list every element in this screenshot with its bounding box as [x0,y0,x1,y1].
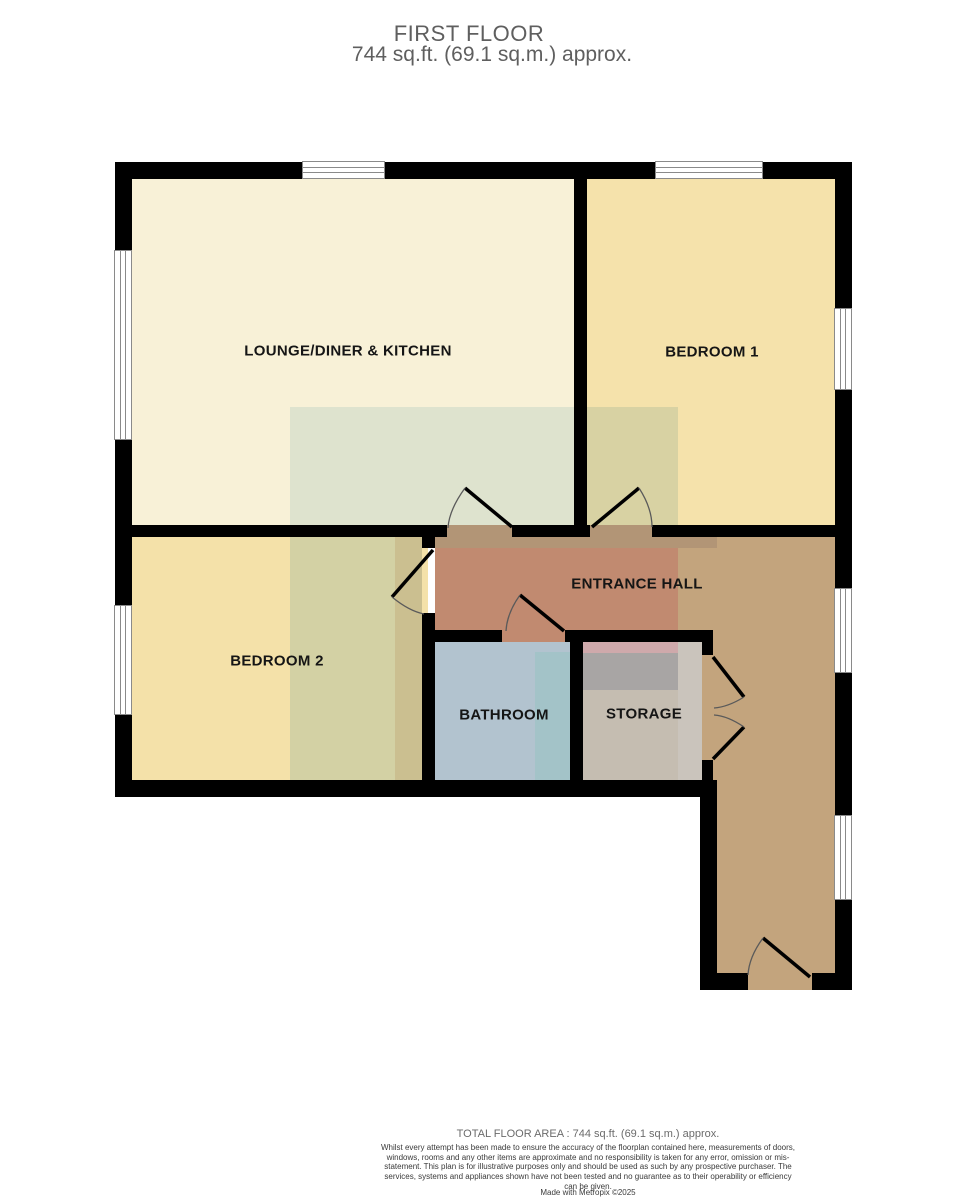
door-graphics [0,0,968,1200]
door-leaf-storage-top [713,657,744,697]
door-leaf-bathroom [520,595,564,631]
door-leaf-lounge [465,488,512,527]
door-swing-arc-front-entrance [748,938,763,975]
door-swing-arc-lounge [448,488,465,528]
door-swing-arc-bedroom2 [392,597,424,614]
door-swing-arc-bedroom1 [639,488,652,527]
room-label-storage: STORAGE [606,706,682,723]
room-label-bedroom2: BEDROOM 2 [230,653,324,670]
room-label-bathroom: BATHROOM [459,707,549,724]
floorplan: LOUNGE/DINER & KITCHEN BEDROOM 1 BEDROOM… [0,0,968,1200]
credit-text: Made with Metropix ©2025 [378,1188,798,1198]
room-label-hall: ENTRANCE HALL [571,576,702,593]
disclaimer-text: Whilst every attempt has been made to en… [378,1143,798,1192]
door-leaf-bedroom1 [592,488,639,527]
door-swing-arc-storage-bottom [714,715,744,727]
room-label-lounge: LOUNGE/DINER & KITCHEN [244,343,451,360]
door-swing-arc-bathroom [506,595,520,631]
door-swing-arc-storage-top [714,697,744,708]
door-leaf-storage-bottom [713,727,744,759]
door-leaf-front-entrance [763,938,810,977]
door-leaf-bedroom2 [392,550,433,597]
room-label-bedroom1: BEDROOM 1 [665,344,759,361]
total-floor-area: TOTAL FLOOR AREA : 744 sq.ft. (69.1 sq.m… [457,1128,720,1140]
